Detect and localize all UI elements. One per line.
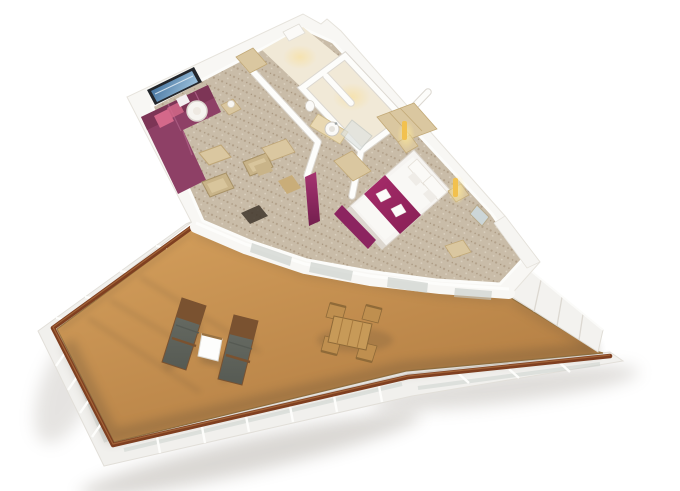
entry-light-glow <box>283 45 317 69</box>
toilet <box>306 101 315 112</box>
floorplan-render <box>0 0 680 491</box>
wall-sconce <box>402 121 407 140</box>
table-lamp <box>228 101 235 108</box>
sink-basin <box>329 126 335 132</box>
faucet <box>335 122 338 125</box>
wall-sconce <box>453 178 458 197</box>
floorplan-svg <box>0 0 680 491</box>
lamp-top <box>193 107 201 115</box>
cocktail-table <box>198 334 222 361</box>
